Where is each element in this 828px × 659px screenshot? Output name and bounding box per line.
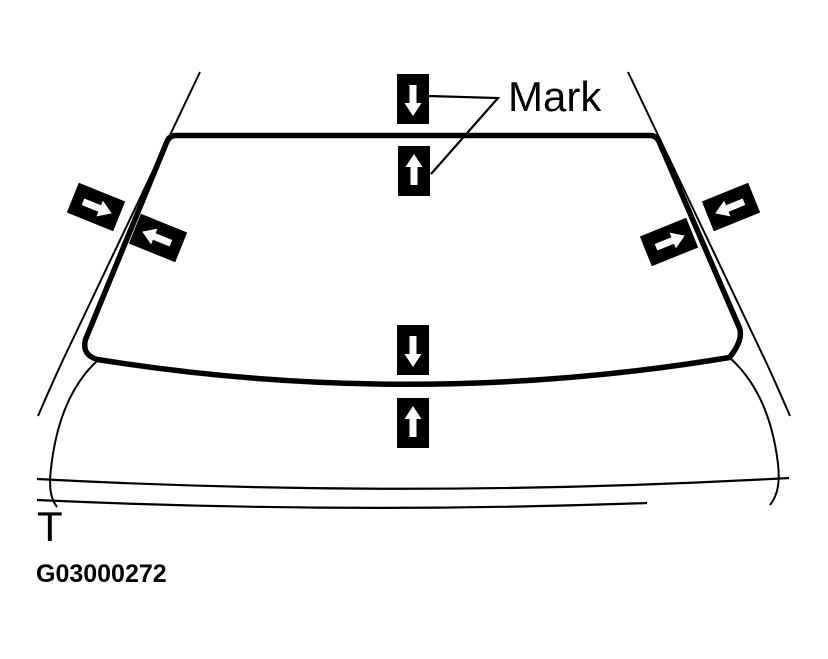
mark-label: Mark [508,73,602,120]
arrow-left-icon [702,183,760,231]
body-point-label: T [37,503,63,550]
arrow-down-icon [397,74,429,124]
arrow-up-icon [398,146,430,196]
arrow-right-icon [640,218,698,266]
deck-lower-line [37,500,647,508]
arrow-down-icon [397,325,429,375]
right-quarter-panel-line [730,358,779,505]
glass-marking-diagram-page: Mark T G03000272 [0,0,828,659]
figure-id-label: G03000272 [36,560,167,588]
deck-upper-line [37,478,789,489]
arrow-right-icon [67,183,125,231]
rear-glass-marking-diagram: Mark T G03000272 [0,0,828,659]
left-quarter-panel-line [50,361,97,507]
arrow-up-icon [397,398,429,448]
arrow-left-icon [129,214,187,262]
